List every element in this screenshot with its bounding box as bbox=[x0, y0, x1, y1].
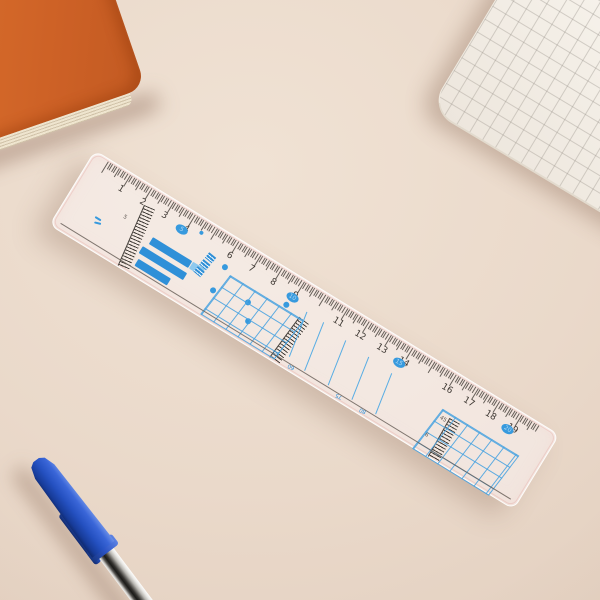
curve-guide-line bbox=[375, 373, 392, 414]
ruler-blue-dots bbox=[95, 151, 558, 435]
desk-scene: 123467891112131416171819 5101520 5 45 6 … bbox=[0, 0, 600, 600]
ruler-cm-number: 8 bbox=[264, 274, 283, 291]
ruler-oval-markers: 5101520 bbox=[95, 151, 558, 435]
curve-guide-lines: 55607580 bbox=[95, 151, 558, 435]
ruler-cm-numbers: 123467891112131416171819 bbox=[95, 151, 558, 435]
ruler-blue-dot bbox=[199, 230, 205, 236]
ruler-bottom-edge-line bbox=[61, 222, 512, 499]
ruler-cm-number: 7 bbox=[242, 261, 261, 278]
ruler-tick-scale bbox=[95, 151, 558, 435]
ruler-cm-number: 11 bbox=[329, 314, 348, 331]
curve-guide-line bbox=[304, 322, 324, 371]
ruler-cm-number: 3 bbox=[155, 207, 174, 224]
blue-grid-right bbox=[412, 409, 519, 496]
ruler-cm-number: 6 bbox=[220, 247, 239, 264]
ruler-cm-number: 12 bbox=[351, 327, 370, 344]
transparent-ruler: 123467891112131416171819 5101520 5 45 6 … bbox=[49, 150, 560, 510]
notebook-paper bbox=[429, 0, 600, 332]
ruler-blue-bars bbox=[95, 151, 558, 435]
ruler-cm-number: 18 bbox=[481, 407, 500, 424]
ruler-cm-number: 16 bbox=[437, 381, 456, 398]
ruler-cm-number: 13 bbox=[372, 341, 391, 358]
ruler-blue-dot bbox=[221, 263, 229, 271]
ruler-body: 123467891112131416171819 5101520 5 45 6 … bbox=[49, 150, 560, 510]
curve-guide-line bbox=[351, 357, 369, 400]
ruler-cm-number: 17 bbox=[459, 394, 478, 411]
ruler-cm-number: 1 bbox=[111, 181, 130, 198]
small-blue-mark bbox=[91, 216, 104, 228]
gauge-label-left: 5 bbox=[122, 214, 128, 221]
curve-guide-line bbox=[328, 340, 347, 385]
